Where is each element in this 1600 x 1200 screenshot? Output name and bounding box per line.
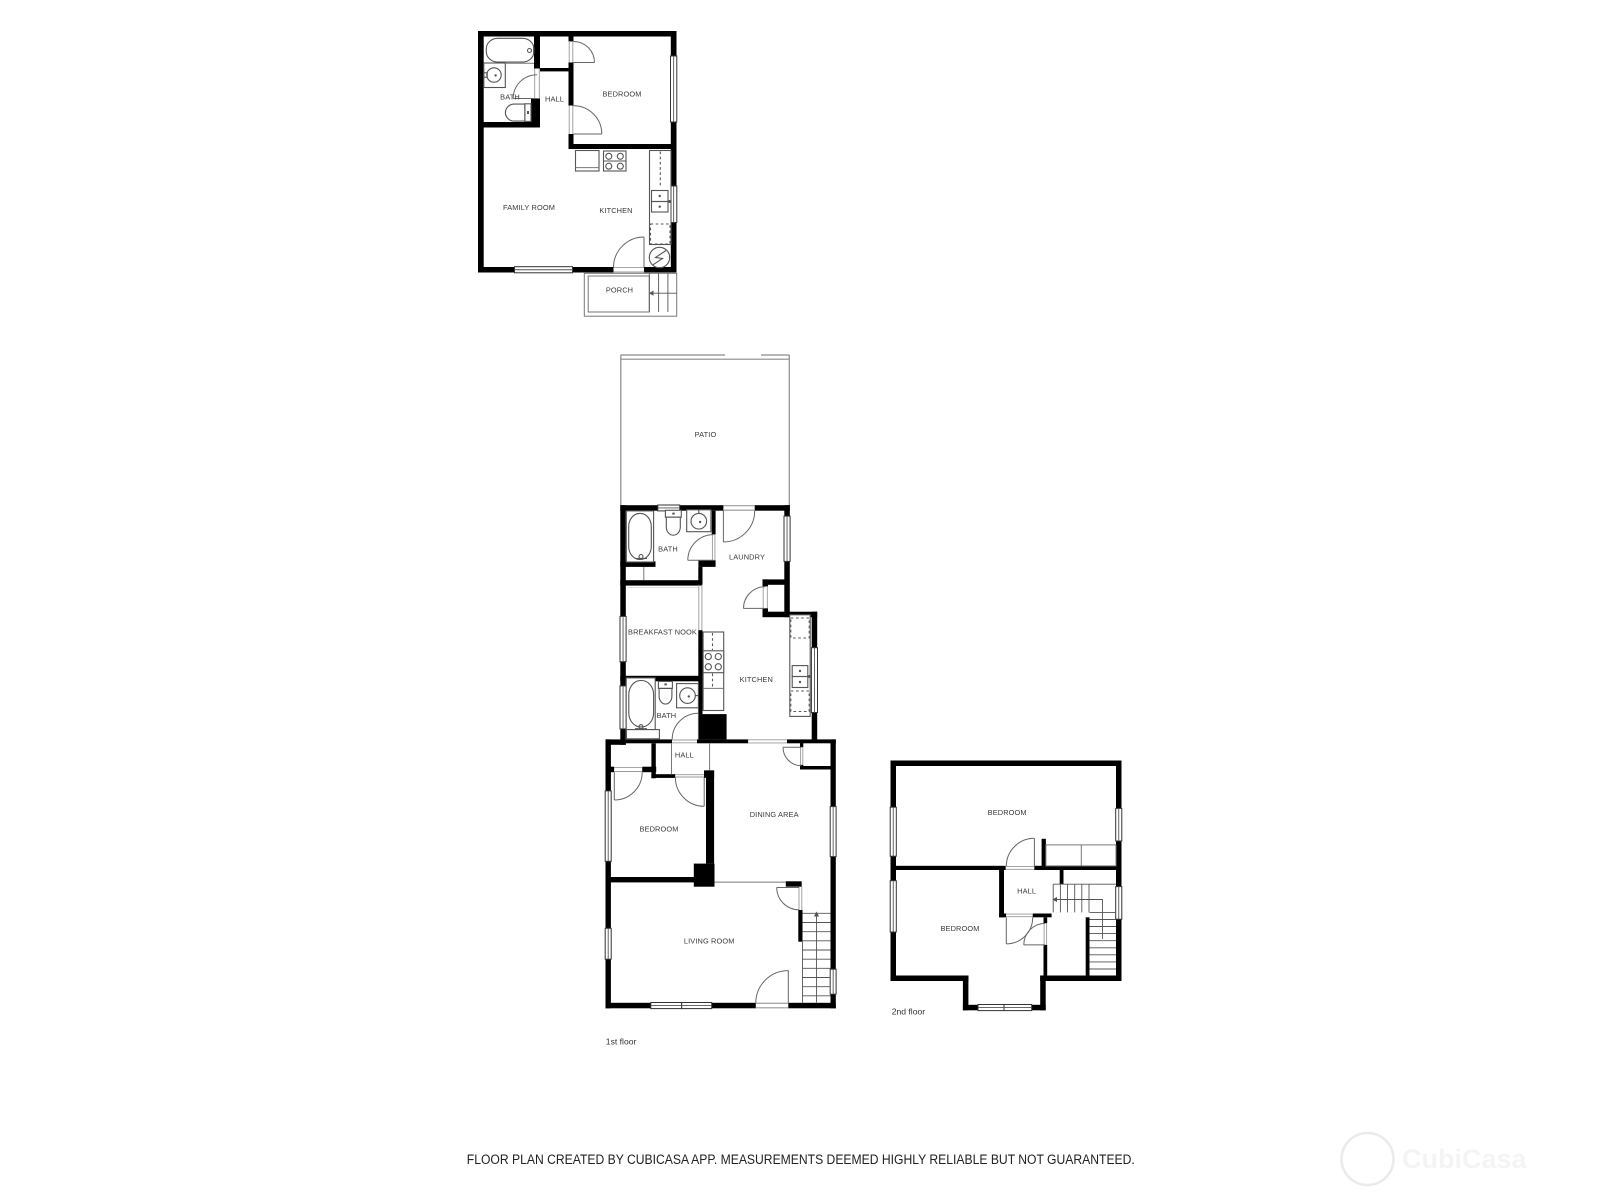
svg-text:FLOOR PLAN CREATED BY CUBICASA: FLOOR PLAN CREATED BY CUBICASA APP. MEAS…: [467, 1152, 1135, 1168]
svg-text:DINING AREA: DINING AREA: [750, 810, 799, 819]
svg-text:BEDROOM: BEDROOM: [602, 90, 641, 99]
svg-text:KITCHEN: KITCHEN: [599, 206, 632, 215]
svg-text:BEDROOM: BEDROOM: [639, 825, 678, 834]
svg-text:HALL: HALL: [545, 95, 564, 104]
svg-text:1st floor: 1st floor: [606, 1036, 637, 1046]
svg-text:PORCH: PORCH: [606, 286, 633, 295]
svg-text:BREAKFAST NOOK: BREAKFAST NOOK: [628, 628, 697, 637]
svg-text:CubiCasa: CubiCasa: [1402, 1144, 1528, 1174]
svg-text:KITCHEN: KITCHEN: [740, 675, 773, 684]
svg-text:2nd floor: 2nd floor: [892, 1006, 926, 1016]
svg-text:BATH: BATH: [658, 545, 678, 554]
svg-text:BATH: BATH: [500, 93, 520, 102]
svg-text:FAMILY ROOM: FAMILY ROOM: [503, 203, 555, 212]
svg-text:BATH: BATH: [657, 711, 677, 720]
svg-text:HALL: HALL: [675, 751, 694, 760]
svg-text:HALL: HALL: [1017, 887, 1036, 896]
svg-text:LIVING ROOM: LIVING ROOM: [684, 937, 735, 946]
svg-text:BEDROOM: BEDROOM: [988, 808, 1027, 817]
svg-text:LAUNDRY: LAUNDRY: [729, 553, 765, 562]
svg-text:PATIO: PATIO: [695, 430, 717, 439]
svg-text:BEDROOM: BEDROOM: [940, 924, 979, 933]
